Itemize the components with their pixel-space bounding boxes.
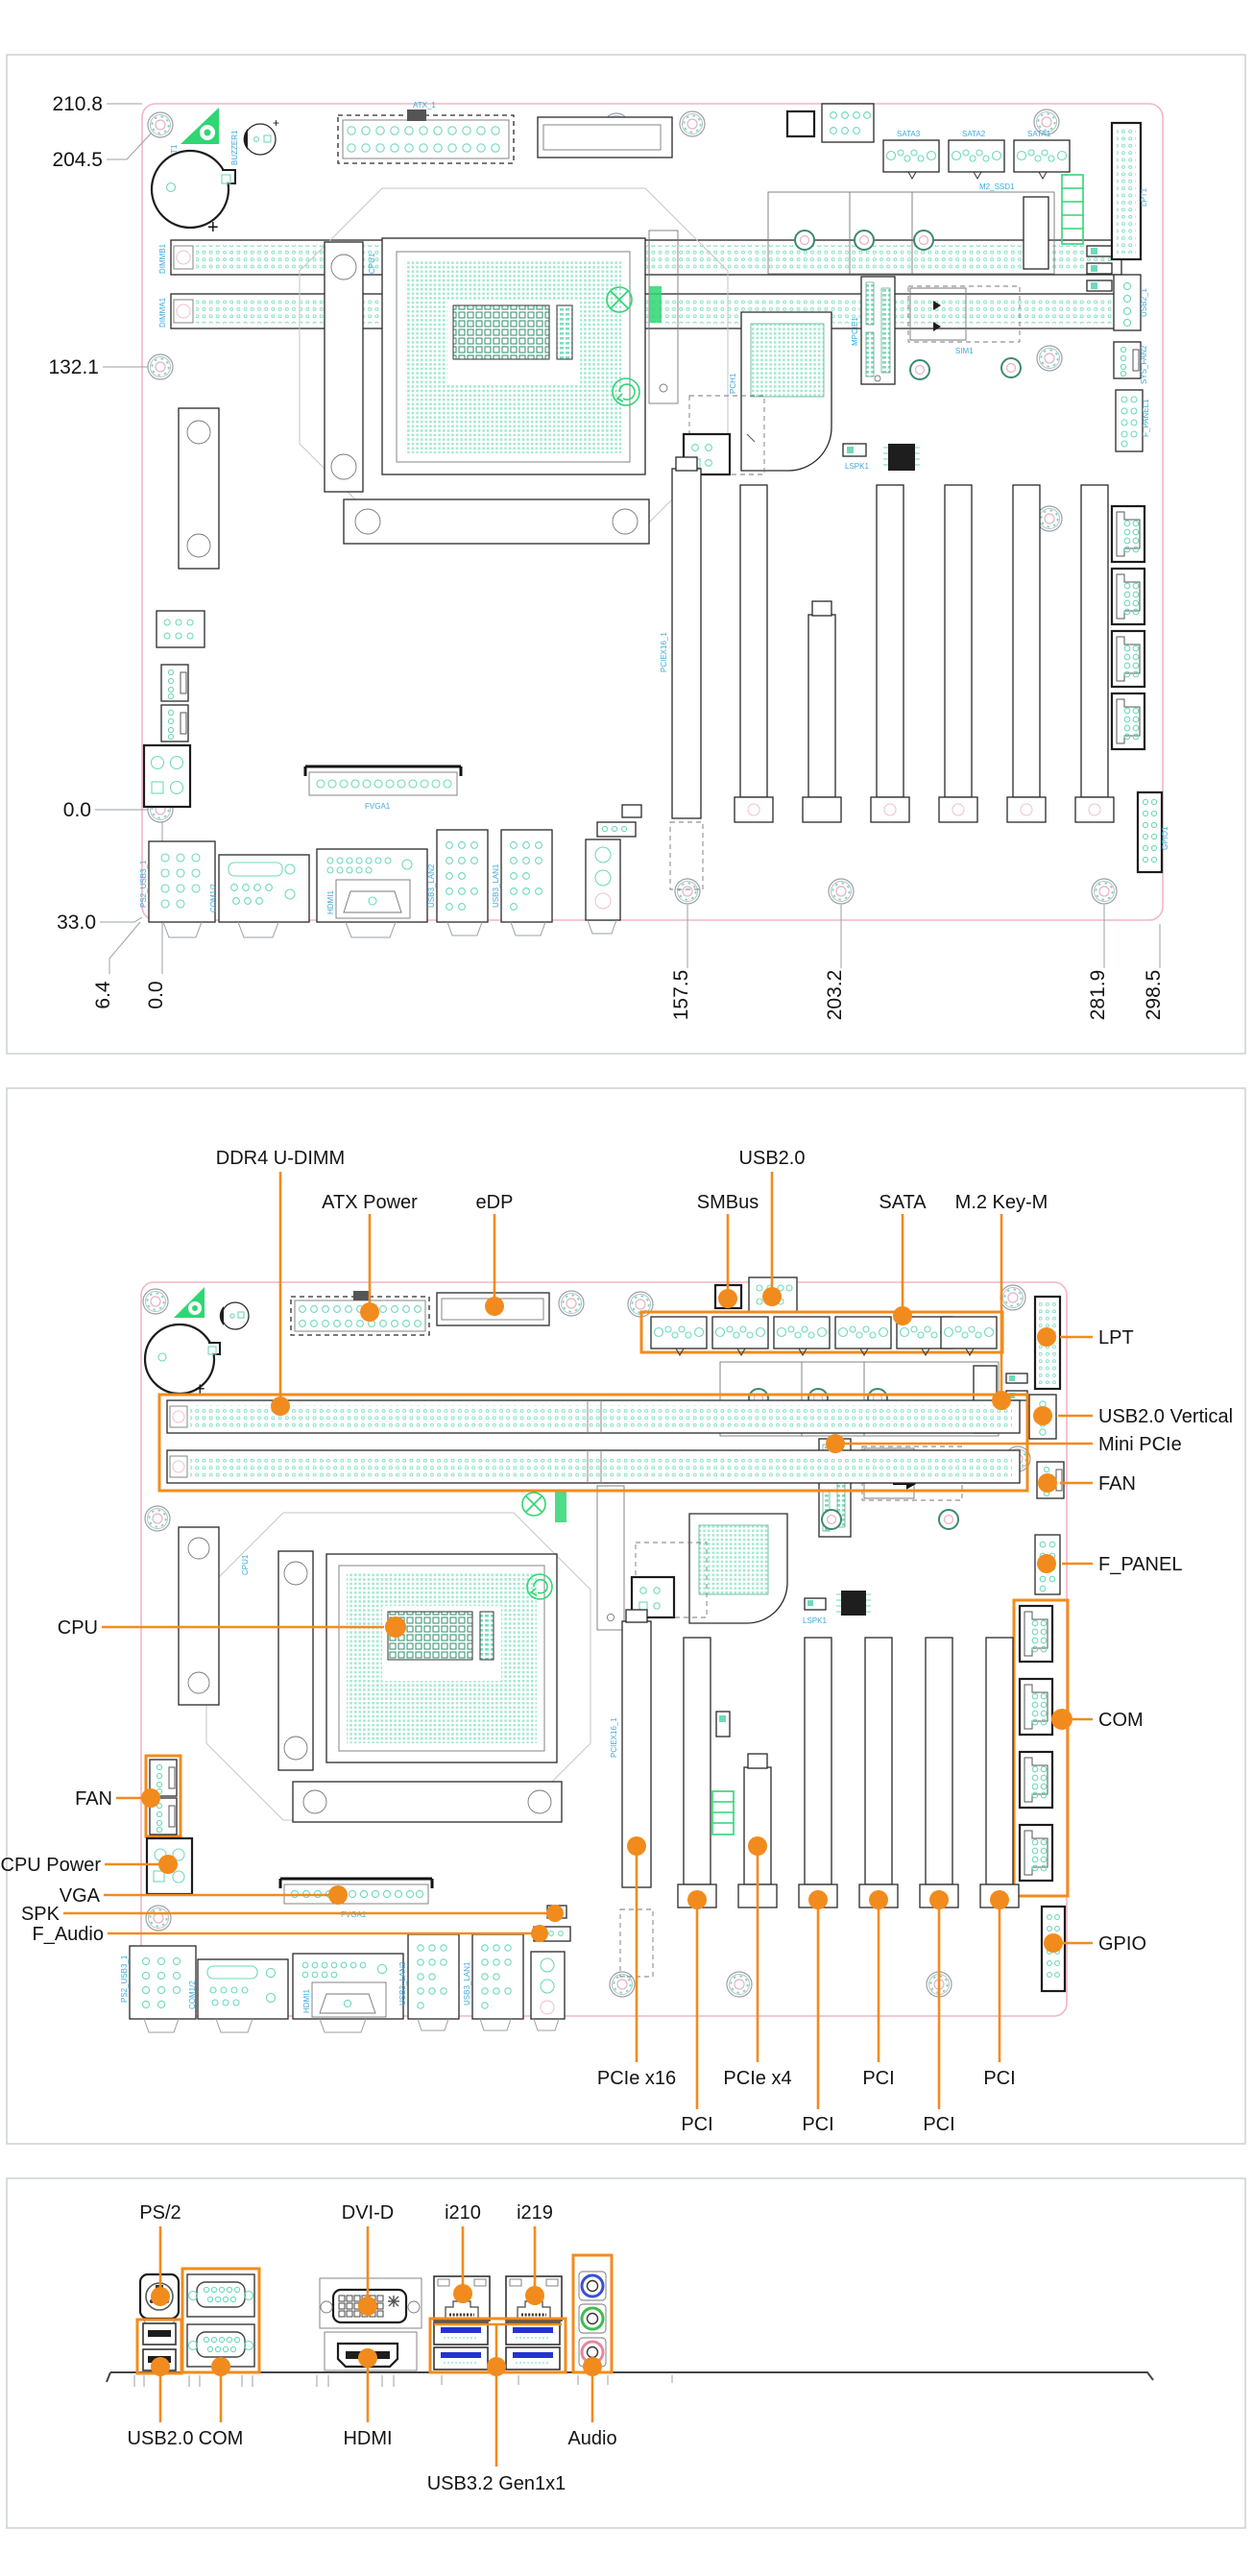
mount-plate-2 <box>179 1527 219 1705</box>
label-usb32-gen1x1: USB3.2 Gen1x1 <box>427 2473 566 2494</box>
dim-210-8: 210.8 <box>52 93 103 115</box>
dim-6-4: 6.4 <box>92 981 114 1009</box>
refdes-hdmi1: HDMI1 <box>326 890 335 914</box>
label-pci-4: PCI <box>802 2114 833 2135</box>
faudio-header <box>597 822 636 837</box>
figure-dimension-drawing: 210.8 204.5 132.1 0.0 33.0 6.4 0.0 157.5… <box>7 55 1245 1054</box>
label-f-panel: F_PANEL <box>1098 1554 1182 1575</box>
label-usb20-top: USB2.0 <box>739 1148 806 1169</box>
label-i219: i219 <box>517 2202 553 2224</box>
edp-connector <box>538 117 672 158</box>
label-atx-power: ATX Power <box>322 1192 418 1213</box>
label-com: COM <box>1098 1710 1144 1731</box>
refdes-sata3: SATA3 <box>897 130 921 138</box>
label-dvi-d: DVI-D <box>342 2202 394 2224</box>
usb2-header <box>822 104 874 142</box>
refdes-usb3lan2-2: USB3_LAN2 <box>398 1961 407 2005</box>
refdes-m2ssd1: M2_SSD1 <box>979 182 1015 191</box>
label-fan-left: FAN <box>75 1788 112 1810</box>
refdes-pch1: PCH1 <box>729 373 737 394</box>
label-pci-3: PCI <box>681 2114 712 2135</box>
label-gpio: GPIO <box>1098 1933 1146 1955</box>
refdes-atx1: ATX_1 <box>413 101 436 109</box>
label-ps2: PS/2 <box>139 2202 181 2224</box>
bios-chip <box>883 444 920 471</box>
refdes-lspk1: LSPK1 <box>845 462 869 471</box>
label-mini-pcie: Mini PCIe <box>1098 1434 1182 1455</box>
refdes-mpcie1: MPCIE1 <box>851 317 859 346</box>
refdes-ps2usb31-2: PS2_USB3_1 <box>120 1955 129 2003</box>
refdes-sata2: SATA2 <box>962 130 986 138</box>
sys-fan2-connector: SYS_FAN2 <box>1114 342 1148 384</box>
refdes-com12-2: COM1/2 <box>188 1981 197 2009</box>
smbus-header <box>787 111 814 136</box>
label-ddr4-udimm: DDR4 U-DIMM <box>216 1148 345 1169</box>
label-usb20-rear: USB2.0 <box>128 2428 194 2449</box>
refdes-dimmb1: DIMMB1 <box>158 243 167 274</box>
dim-203-2: 203.2 <box>824 970 846 1021</box>
diagram-canvas: 210.8 204.5 132.1 0.0 33.0 6.4 0.0 157.5… <box>0 0 1253 2576</box>
refdes-lspk1-2: LSPK1 <box>803 1616 827 1625</box>
refdes-dimma1: DIMMA1 <box>158 297 167 328</box>
label-m2-keym: M.2 Key-M <box>955 1192 1048 1213</box>
sata-connectors: SATA3 SATA2 SATA1 <box>883 130 1070 179</box>
jumpers <box>1087 246 1112 291</box>
refdes-buzzer1: BUZZER1 <box>230 130 239 165</box>
label-audio: Audio <box>567 2428 616 2449</box>
bios-chip-2 <box>836 1591 871 1616</box>
dim-298-5: 298.5 <box>1143 970 1165 1021</box>
label-i210: i210 <box>445 2202 481 2224</box>
refdes-lpt1: LPT1 <box>1140 187 1148 207</box>
refdes-fvga1: FVGA1 <box>365 802 391 811</box>
spk-header <box>622 805 641 817</box>
label-f-audio: F_Audio <box>33 1924 105 1945</box>
label-usb20-vertical: USB2.0 Vertical <box>1098 1406 1233 1427</box>
refdes-ps2usb31: PS2_USB3_1 <box>139 860 148 908</box>
label-hdmi: HDMI <box>343 2428 392 2449</box>
label-pci-5: PCI <box>923 2114 954 2135</box>
label-vga: VGA <box>60 1885 101 1907</box>
dim-204-5: 204.5 <box>52 149 103 171</box>
mount-plate <box>179 408 219 569</box>
label-lpt: LPT <box>1098 1327 1134 1349</box>
dim-132-1: 132.1 <box>48 356 99 378</box>
figure-connector-callouts: + <box>1 1088 1245 2144</box>
refdes-sata1: SATA1 <box>1027 130 1051 138</box>
refdes-cpu1-2: CPU1 <box>241 1554 250 1575</box>
label-smbus: SMBus <box>697 1192 759 1213</box>
refdes-usb3lan1: USB3_LAN1 <box>492 863 500 908</box>
label-com-rear: COM <box>199 2428 244 2449</box>
refdes-com12: COM1/2 <box>209 884 218 912</box>
atx-power-connector-2 <box>291 1291 429 1335</box>
figure-rear-io: PS/2 DVI-D i210 i219 USB2.0 COM HDMI Aud… <box>7 2178 1245 2528</box>
label-pcie-x16: PCIe x16 <box>597 2068 676 2089</box>
refdes-sim1: SIM1 <box>955 347 974 355</box>
label-pci-2: PCI <box>983 2068 1015 2089</box>
dim-33-0: 33.0 <box>57 911 96 934</box>
label-spk: SPK <box>21 1904 60 1925</box>
dim-157-5: 157.5 <box>670 970 692 1021</box>
manual-page: 210.8 204.5 132.1 0.0 33.0 6.4 0.0 157.5… <box>0 0 1253 2576</box>
label-cpu: CPU <box>58 1617 98 1639</box>
svg-text:+: + <box>207 217 219 238</box>
refdes-usb3lan2: USB3_LAN2 <box>427 863 436 908</box>
label-sata: SATA <box>879 1192 927 1213</box>
refdes-hdmi1-2: HDMI1 <box>302 1989 311 2013</box>
dim-0-0-left: 0.0 <box>63 799 91 821</box>
pch-chip: PCH1 <box>729 312 831 471</box>
sata-connectors-2 <box>641 1312 1002 1355</box>
refdes-cpu1: CPU1 <box>368 253 376 274</box>
refdes-pciex16-2: PCIEX16_1 <box>610 1717 618 1758</box>
label-fan-right: FAN <box>1098 1473 1136 1495</box>
refdes-usb21: USB2_1 <box>1140 288 1148 317</box>
label-pci-1: PCI <box>862 2068 894 2089</box>
label-cpu-power: CPU Power <box>1 1855 102 1876</box>
label-edp: eDP <box>476 1192 514 1213</box>
refdes-fvga1-2: FVGA1 <box>341 1910 367 1919</box>
logo-eye-dot-2 <box>192 1305 198 1311</box>
pch-chip-2 <box>689 1514 787 1623</box>
label-pcie-x4: PCIe x4 <box>723 2068 791 2089</box>
refdes-usb3lan1-2: USB3_LAN1 <box>463 1961 471 2005</box>
svg-text:+: + <box>273 116 279 130</box>
dim-0-0-bottom: 0.0 <box>145 981 167 1009</box>
refdes-gpio1: GPIO1 <box>1161 826 1169 850</box>
refdes-pciex16: PCIEX16_1 <box>660 632 668 672</box>
refdes-sysfan2: SYS_FAN2 <box>1140 345 1148 384</box>
dim-281-9: 281.9 <box>1087 970 1109 1021</box>
logo-eye-dot <box>205 130 211 136</box>
refdes-fpanel1: F_PANEL1 <box>1142 399 1150 437</box>
